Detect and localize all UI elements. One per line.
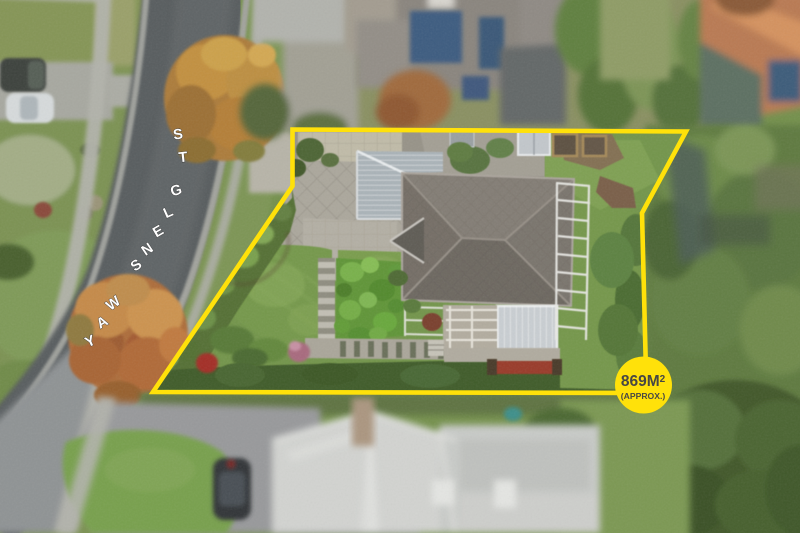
svg-text:869M2: 869M2 <box>621 373 666 390</box>
svg-text:(APPROX.): (APPROX.) <box>621 391 666 401</box>
svg-text:T: T <box>178 150 189 167</box>
